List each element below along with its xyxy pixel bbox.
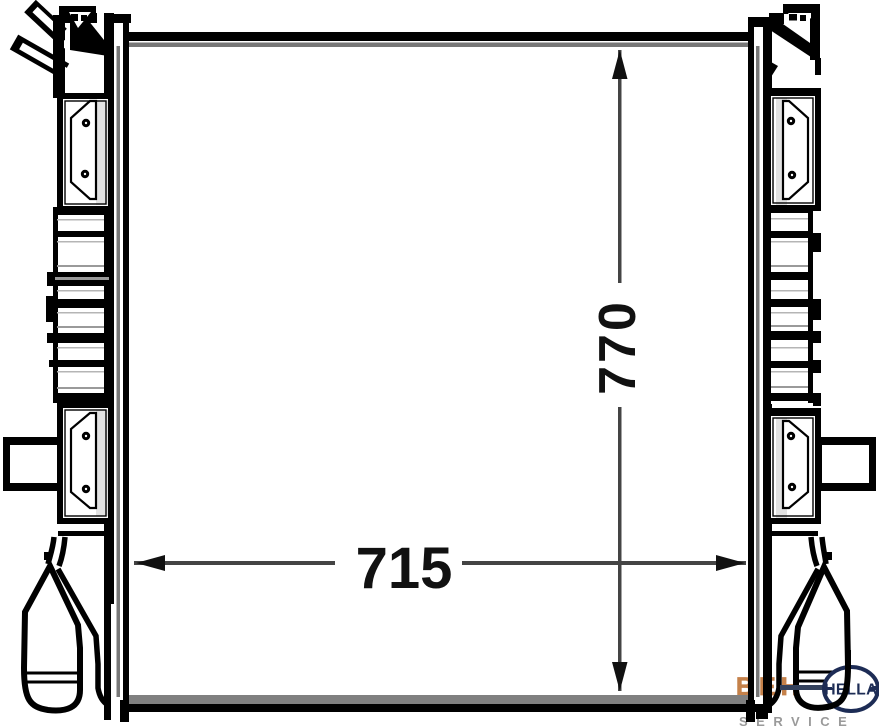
svg-text:HELLA: HELLA — [824, 682, 877, 699]
svg-text:770: 770 — [589, 299, 647, 395]
svg-text:715: 715 — [356, 536, 453, 601]
